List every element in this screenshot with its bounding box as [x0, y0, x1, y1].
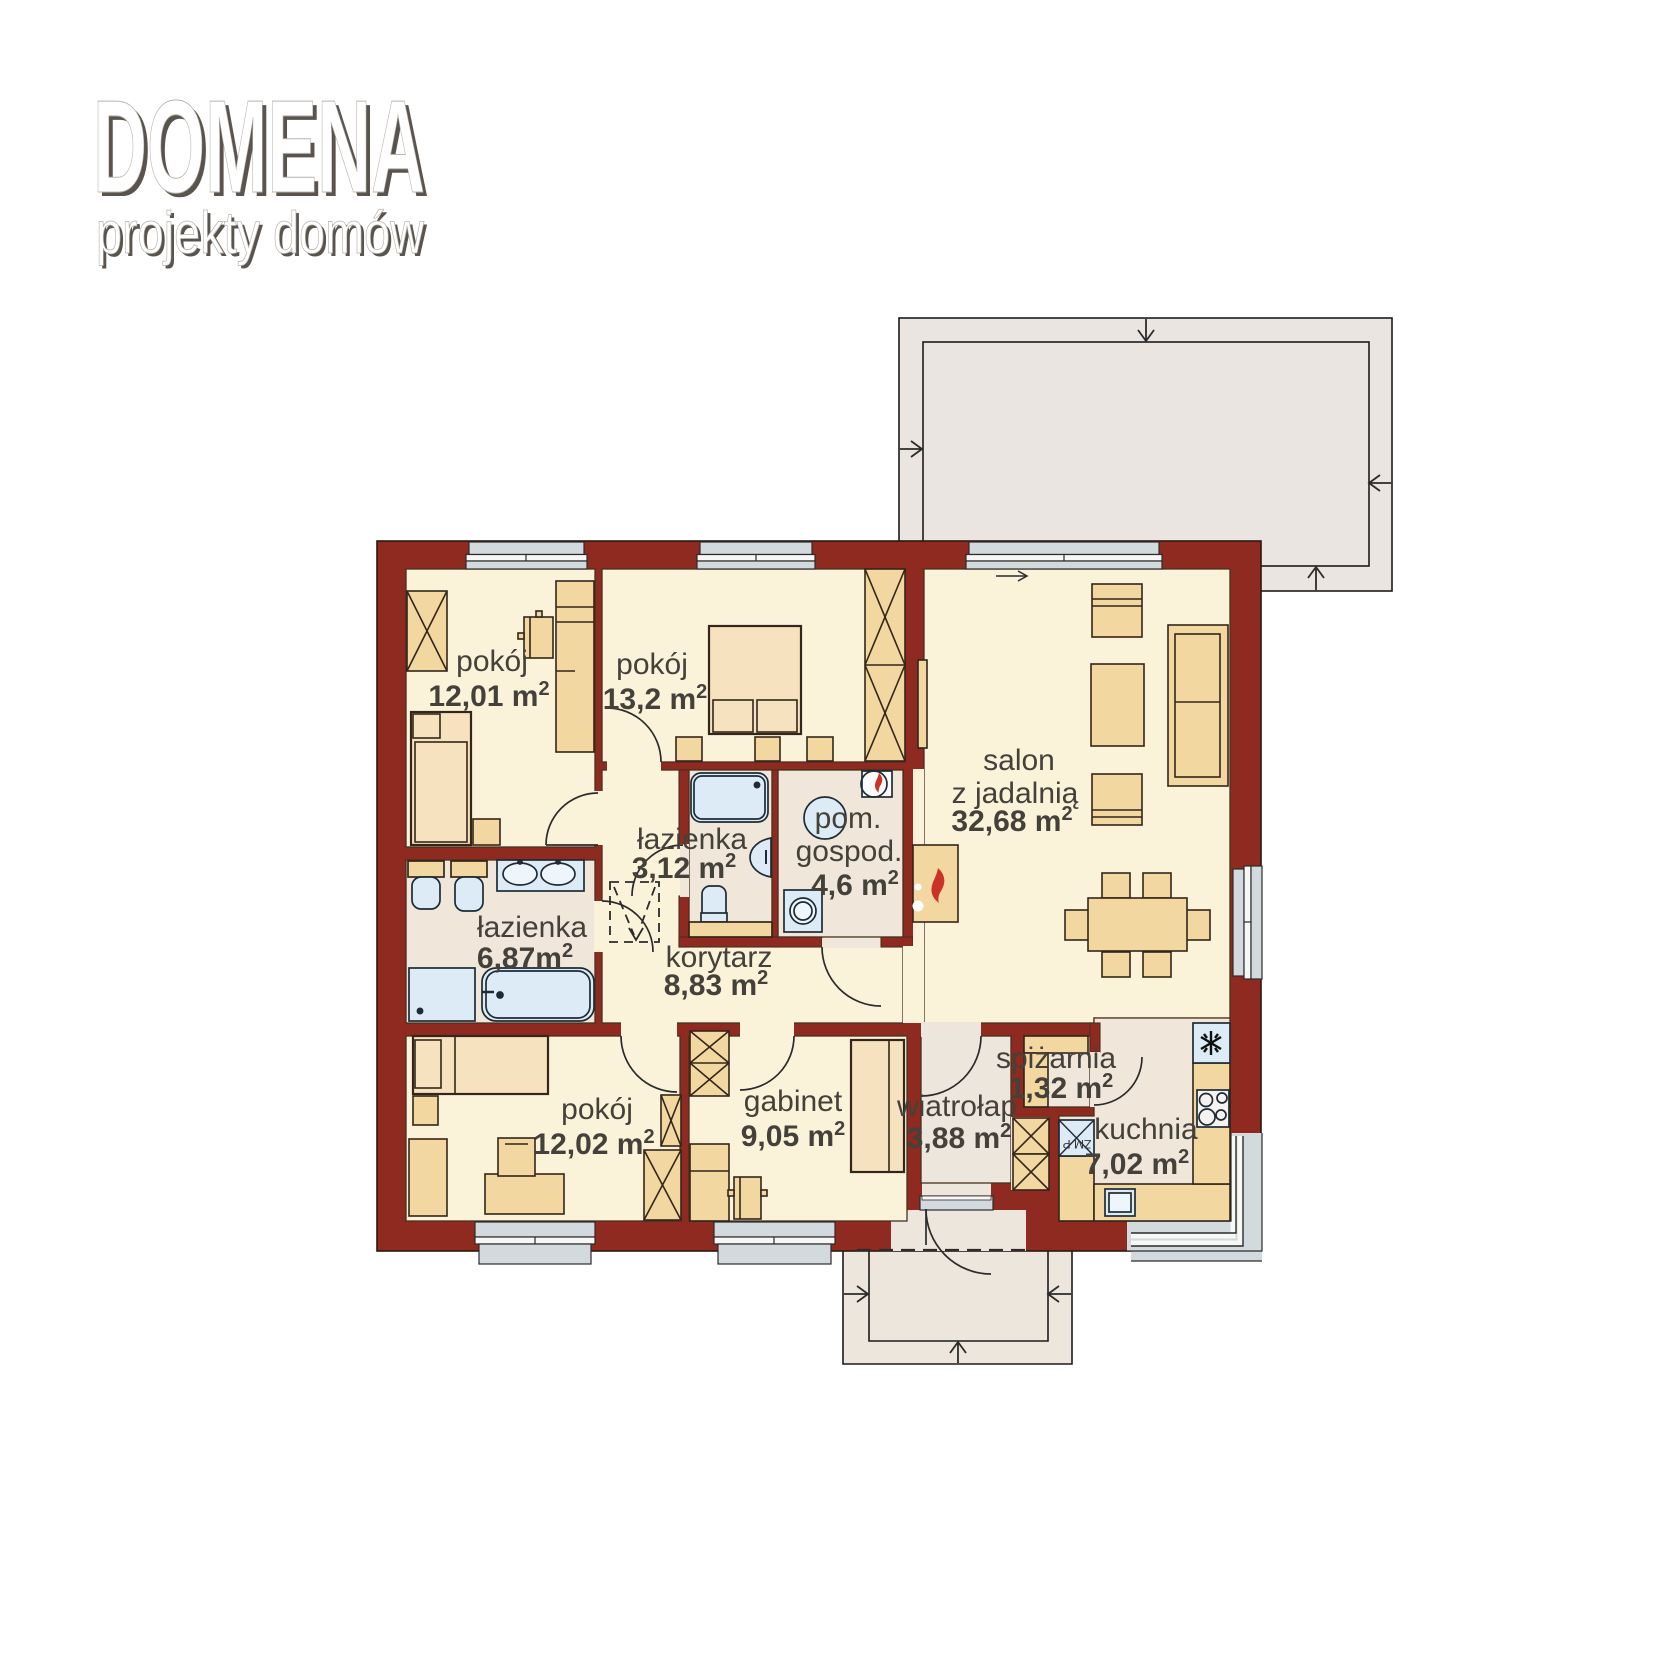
svg-text:pokój: pokój — [456, 645, 528, 678]
svg-text:8,83 m2: 8,83 m2 — [664, 967, 769, 1002]
svg-text:kuchnia: kuchnia — [1094, 1113, 1198, 1146]
svg-text:pom.: pom. — [815, 802, 882, 835]
svg-text:gospod.: gospod. — [796, 835, 903, 868]
svg-text:gabinet: gabinet — [744, 1085, 843, 1118]
svg-text:1,32 m2: 1,32 m2 — [1009, 1070, 1114, 1105]
svg-text:projekty domów: projekty domów — [96, 200, 424, 266]
svg-text:4,6 m2: 4,6 m2 — [811, 867, 899, 902]
svg-text:spiżarnia: spiżarnia — [996, 1042, 1116, 1075]
svg-text:32,68 m2: 32,68 m2 — [951, 803, 1072, 838]
svg-text:wiatrołap: wiatrołap — [896, 1090, 1017, 1123]
svg-text:DOMENA: DOMENA — [93, 73, 425, 220]
svg-text:6,87m2: 6,87m2 — [477, 940, 573, 975]
svg-text:salon: salon — [983, 744, 1055, 777]
svg-text:pokój: pokój — [561, 1093, 633, 1126]
svg-text:12,02 m2: 12,02 m2 — [533, 1126, 654, 1161]
svg-text:12,01 m2: 12,01 m2 — [428, 678, 549, 713]
svg-text:pokój: pokój — [616, 648, 688, 681]
svg-text:7,02 m2: 7,02 m2 — [1085, 1146, 1190, 1181]
svg-text:9,05 m2: 9,05 m2 — [741, 1118, 846, 1153]
svg-text:3,88 m2: 3,88 m2 — [907, 1120, 1012, 1155]
svg-text:13,2 m2: 13,2 m2 — [603, 681, 708, 716]
svg-text:3,12 m2: 3,12 m2 — [632, 850, 737, 885]
